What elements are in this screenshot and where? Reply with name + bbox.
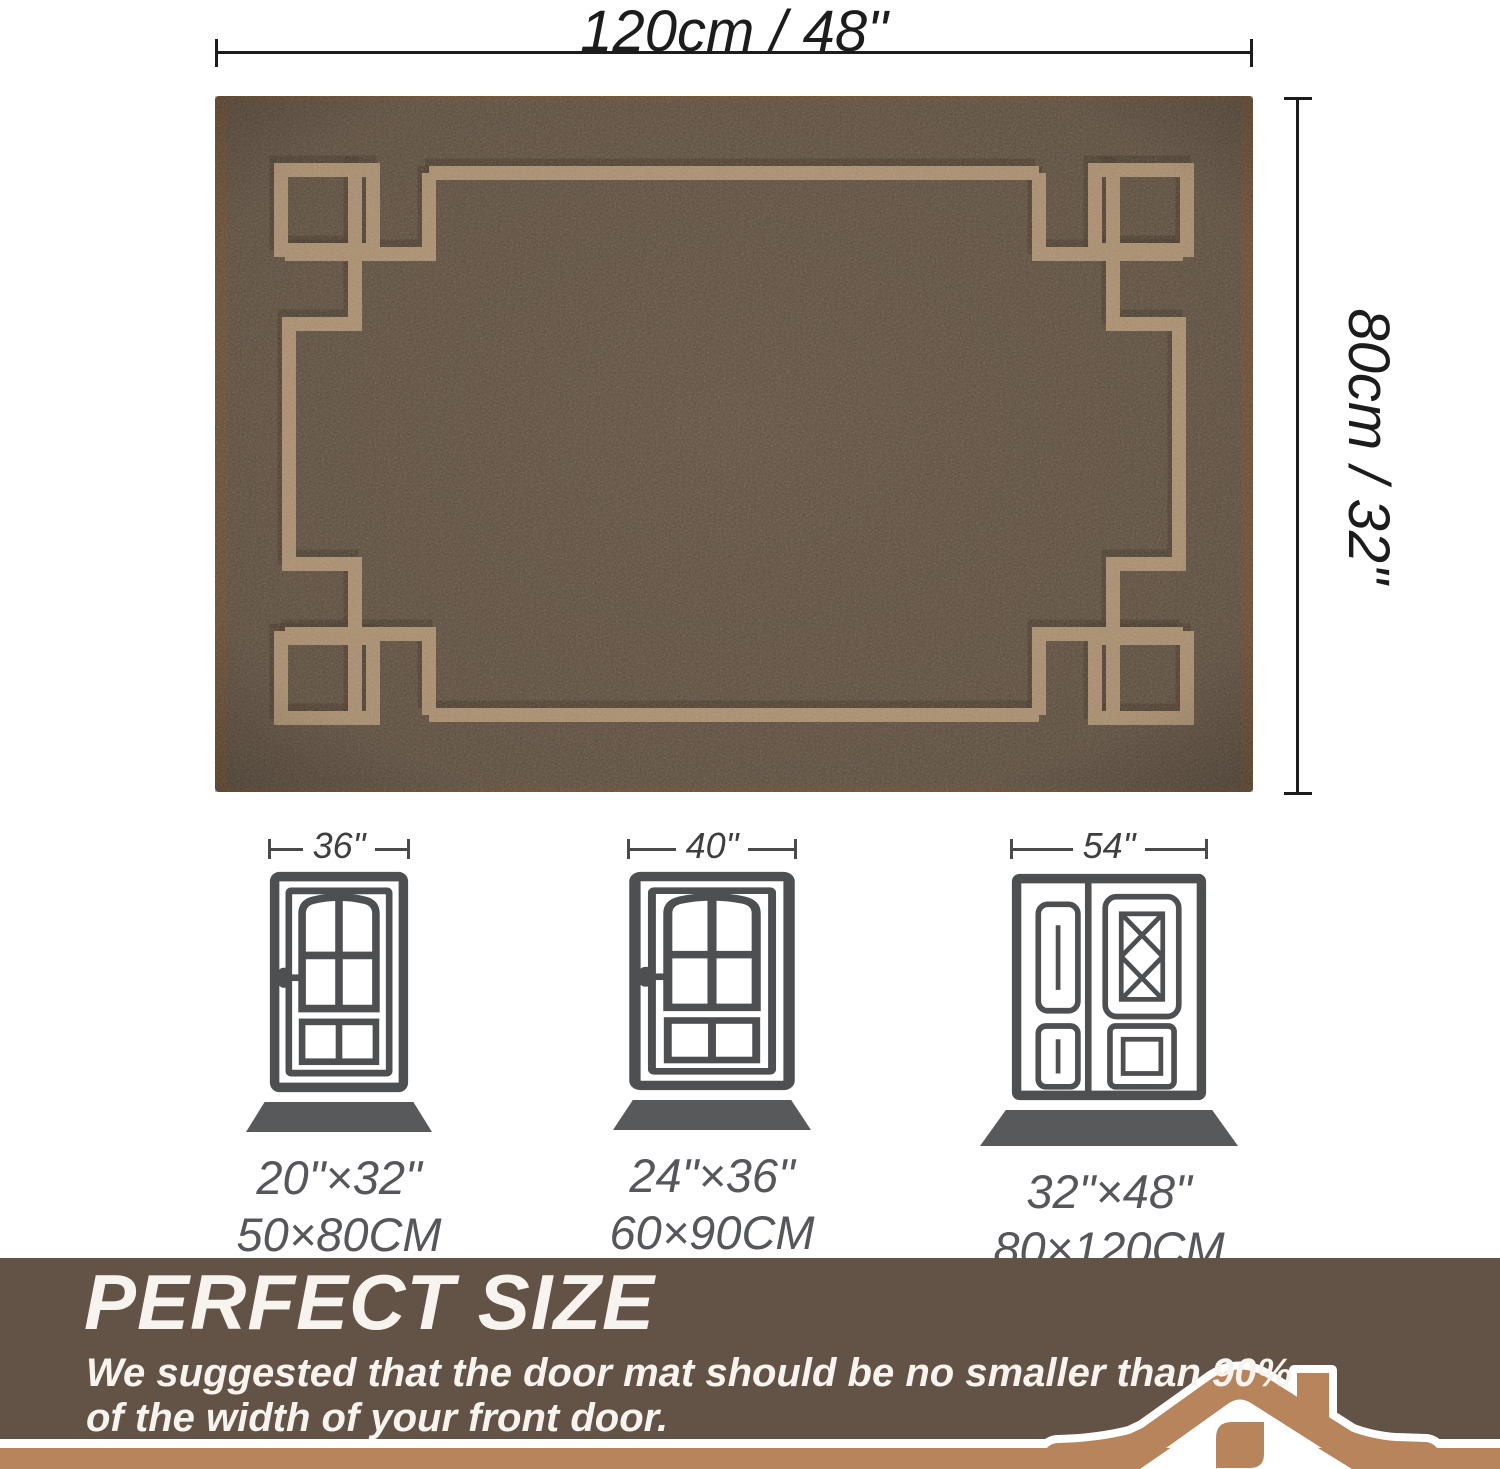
mat-size-inches: 20"×32" bbox=[256, 1154, 421, 1201]
door-mat-photo bbox=[215, 96, 1253, 792]
double-door-icon bbox=[1010, 872, 1208, 1102]
door-mat-shape bbox=[246, 1102, 432, 1132]
door-mat-shape bbox=[980, 1110, 1238, 1146]
mat-size-inches: 24"×36" bbox=[629, 1152, 794, 1199]
door-size-option-2: 40" 24"×36" 60×90CM bbox=[612, 836, 812, 1256]
mat-size-cm: 50×80CM bbox=[236, 1211, 441, 1258]
door-size-option-1: 36" 20"×32" 50×80CM bbox=[239, 836, 439, 1258]
banner-title: PERFECT SIZE bbox=[84, 1263, 655, 1341]
door-size-option-3: 54" 32"×48" 80×120CM bbox=[979, 836, 1239, 1272]
banner-subtitle-line1: We suggested that the door mat should be… bbox=[86, 1351, 1292, 1396]
door-width-label: 54" bbox=[1073, 828, 1146, 864]
single-door-icon bbox=[268, 870, 410, 1094]
door-mat-shape bbox=[613, 1100, 811, 1130]
door-width-dimension-line: 54" bbox=[1010, 836, 1208, 862]
mat-height-label: 80cm / 32" bbox=[1333, 96, 1403, 796]
doormat-size-infographic: 120cm / 48" 80cm / 32" bbox=[0, 0, 1500, 1469]
door-width-label: 36" bbox=[303, 828, 376, 864]
mat-size-inches: 32"×48" bbox=[1026, 1168, 1191, 1215]
mat-height-dimension-line bbox=[1296, 97, 1299, 795]
door-width-dimension-line: 40" bbox=[627, 836, 797, 862]
single-door-icon bbox=[627, 870, 797, 1092]
door-width-dimension-line: 36" bbox=[268, 836, 410, 862]
banner-subtitle-line2: of the width of your front door. bbox=[86, 1396, 1292, 1441]
banner-subtitle: We suggested that the door mat should be… bbox=[86, 1351, 1292, 1441]
mat-width-dimension-line bbox=[215, 51, 1253, 54]
mat-size-cm: 60×90CM bbox=[609, 1209, 814, 1256]
door-width-label: 40" bbox=[676, 828, 749, 864]
